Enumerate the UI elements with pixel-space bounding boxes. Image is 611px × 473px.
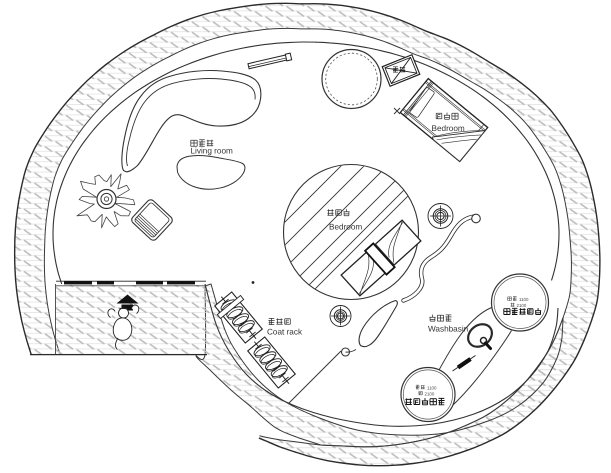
svg-text:1100: 1100 xyxy=(427,385,437,390)
svg-text:Washbasin: Washbasin xyxy=(428,325,469,334)
svg-text:1100: 1100 xyxy=(519,297,529,302)
svg-text:2100: 2100 xyxy=(425,391,435,396)
svg-text:Living room: Living room xyxy=(191,147,234,156)
svg-text:Coat rack: Coat rack xyxy=(267,328,303,337)
svg-text:Bedroom: Bedroom xyxy=(329,223,362,232)
svg-text:2100: 2100 xyxy=(517,303,527,308)
svg-text:Bedroom: Bedroom xyxy=(432,124,465,133)
